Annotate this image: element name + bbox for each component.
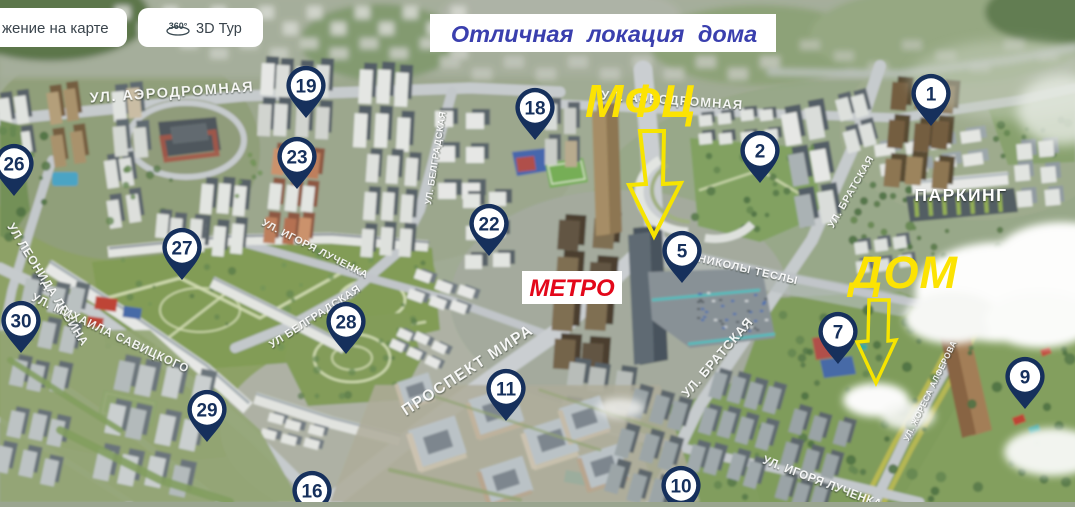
svg-text:27: 27 [171,239,192,260]
svg-text:2: 2 [755,142,766,163]
svg-text:11: 11 [496,380,517,401]
svg-text:5: 5 [677,242,688,263]
svg-text:МФЦ: МФЦ [585,75,696,127]
svg-text:16: 16 [301,482,322,503]
svg-text:7: 7 [833,323,844,344]
svg-text:30: 30 [10,312,31,333]
svg-text:Отличная локация дома: Отличная локация дома [451,21,757,47]
svg-text:26: 26 [3,155,24,176]
svg-text:МЕТРО: МЕТРО [529,275,615,302]
svg-text:жение на карте: жение на карте [2,20,109,37]
svg-text:360°: 360° [169,21,188,31]
svg-text:ПАРКИНГ: ПАРКИНГ [914,185,1007,205]
svg-text:18: 18 [524,99,545,120]
svg-text:28: 28 [335,313,356,334]
svg-text:10: 10 [670,477,691,498]
svg-text:22: 22 [478,215,499,236]
svg-text:1: 1 [926,85,937,106]
svg-text:29: 29 [196,401,217,422]
svg-text:19: 19 [295,77,316,98]
svg-text:23: 23 [286,148,307,169]
svg-text:3D Тур: 3D Тур [196,21,242,37]
svg-text:ДОМ: ДОМ [846,247,959,298]
svg-text:9: 9 [1020,368,1031,389]
